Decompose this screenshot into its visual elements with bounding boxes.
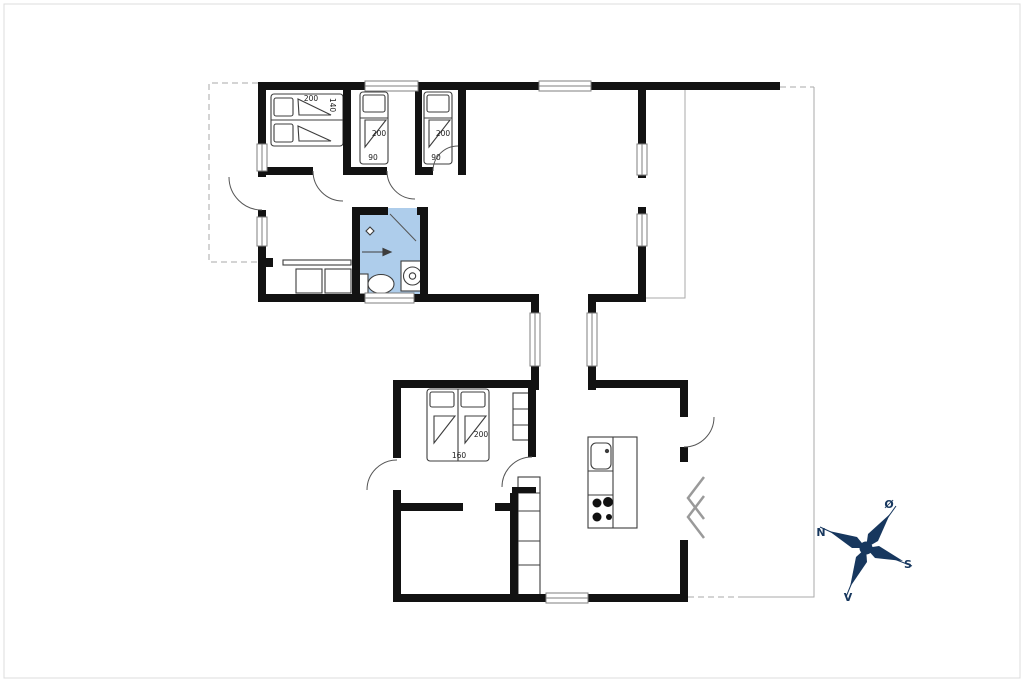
pillow-icon — [430, 392, 454, 407]
sink-icon — [591, 443, 611, 469]
bed-length-label: 200 — [304, 94, 319, 103]
compass-rose: N Ø S V — [816, 498, 912, 604]
wall — [417, 207, 428, 215]
pillow-icon — [274, 98, 293, 116]
wall — [588, 380, 688, 388]
toilet-bowl — [368, 275, 394, 294]
bed-width-label: 160 — [452, 451, 467, 460]
wall — [258, 82, 780, 90]
window — [546, 593, 588, 603]
window — [530, 313, 540, 366]
door-swing-arc-living-east — [684, 417, 714, 447]
wall — [352, 207, 360, 302]
door-swing-arc-bedroom2 — [387, 171, 415, 199]
folding-door-icon — [688, 477, 704, 538]
window — [587, 313, 597, 366]
compass-label-east: Ø — [884, 498, 894, 511]
wall — [401, 503, 463, 511]
wall — [343, 167, 387, 175]
door-swing-arc-entrance-west — [229, 177, 262, 210]
west-terrace-outline — [209, 83, 258, 262]
bed-length-label: 200 — [436, 129, 451, 138]
pillow-icon — [461, 392, 485, 407]
window — [365, 293, 414, 303]
wall — [393, 380, 401, 458]
wall — [590, 294, 646, 302]
wall — [415, 167, 433, 175]
roof-overhang-outline — [646, 90, 685, 298]
compass-center-dot — [860, 542, 873, 555]
door-swing-arc-bedroom4-west — [367, 460, 397, 490]
window — [365, 81, 418, 91]
utility-counter — [283, 260, 351, 265]
floor-plan-svg: 200 140 200 90 200 90 200 160 — [0, 0, 1024, 682]
wall — [393, 380, 539, 388]
wall — [495, 503, 518, 511]
compass-label-north: N — [816, 526, 825, 539]
east-terrace-outline — [742, 87, 814, 597]
bed-width-label: 140 — [328, 98, 337, 113]
burner — [606, 514, 612, 520]
window — [257, 217, 267, 246]
toilet-icon — [359, 274, 394, 294]
wall — [343, 90, 351, 175]
floor-plan-page: 200 140 200 90 200 90 200 160 — [0, 0, 1024, 682]
bathroom-floor-door-gap — [388, 208, 417, 216]
kitchen-shelves — [518, 477, 540, 597]
pillow-icon — [274, 124, 293, 142]
bed-length-label: 200 — [474, 430, 489, 439]
burner — [593, 513, 602, 522]
compass-main-points — [829, 514, 903, 587]
furniture-layer — [271, 92, 637, 597]
bed-length-label: 200 — [372, 129, 387, 138]
wall — [680, 388, 688, 417]
wall — [528, 388, 536, 457]
bed-width-label: 90 — [431, 153, 441, 162]
wall — [512, 487, 536, 493]
shelves-outline — [518, 477, 540, 597]
pillow-icon — [363, 95, 385, 112]
wall — [458, 90, 466, 175]
wall — [680, 540, 688, 602]
bed-width-label: 90 — [368, 153, 378, 162]
burner — [593, 499, 602, 508]
window — [637, 144, 647, 175]
wall — [420, 215, 428, 302]
wall — [680, 447, 688, 462]
window — [257, 144, 267, 171]
wall — [266, 258, 273, 267]
compass-label-west: V — [844, 591, 853, 604]
wall — [393, 490, 401, 602]
faucet-dot — [605, 449, 608, 452]
wall — [393, 594, 688, 602]
window — [637, 214, 647, 246]
compass-label-south: S — [904, 558, 912, 571]
wall — [415, 90, 422, 175]
burner — [603, 497, 613, 507]
pillow-icon — [427, 95, 449, 112]
toilet-tank — [359, 274, 368, 294]
appliance-icon — [325, 269, 351, 293]
appliance-icon — [296, 269, 322, 293]
shower-drain-inner — [409, 273, 415, 279]
window — [539, 81, 591, 91]
kitchen-island — [588, 437, 637, 528]
door-swing-arc-bedroom1 — [313, 171, 343, 201]
